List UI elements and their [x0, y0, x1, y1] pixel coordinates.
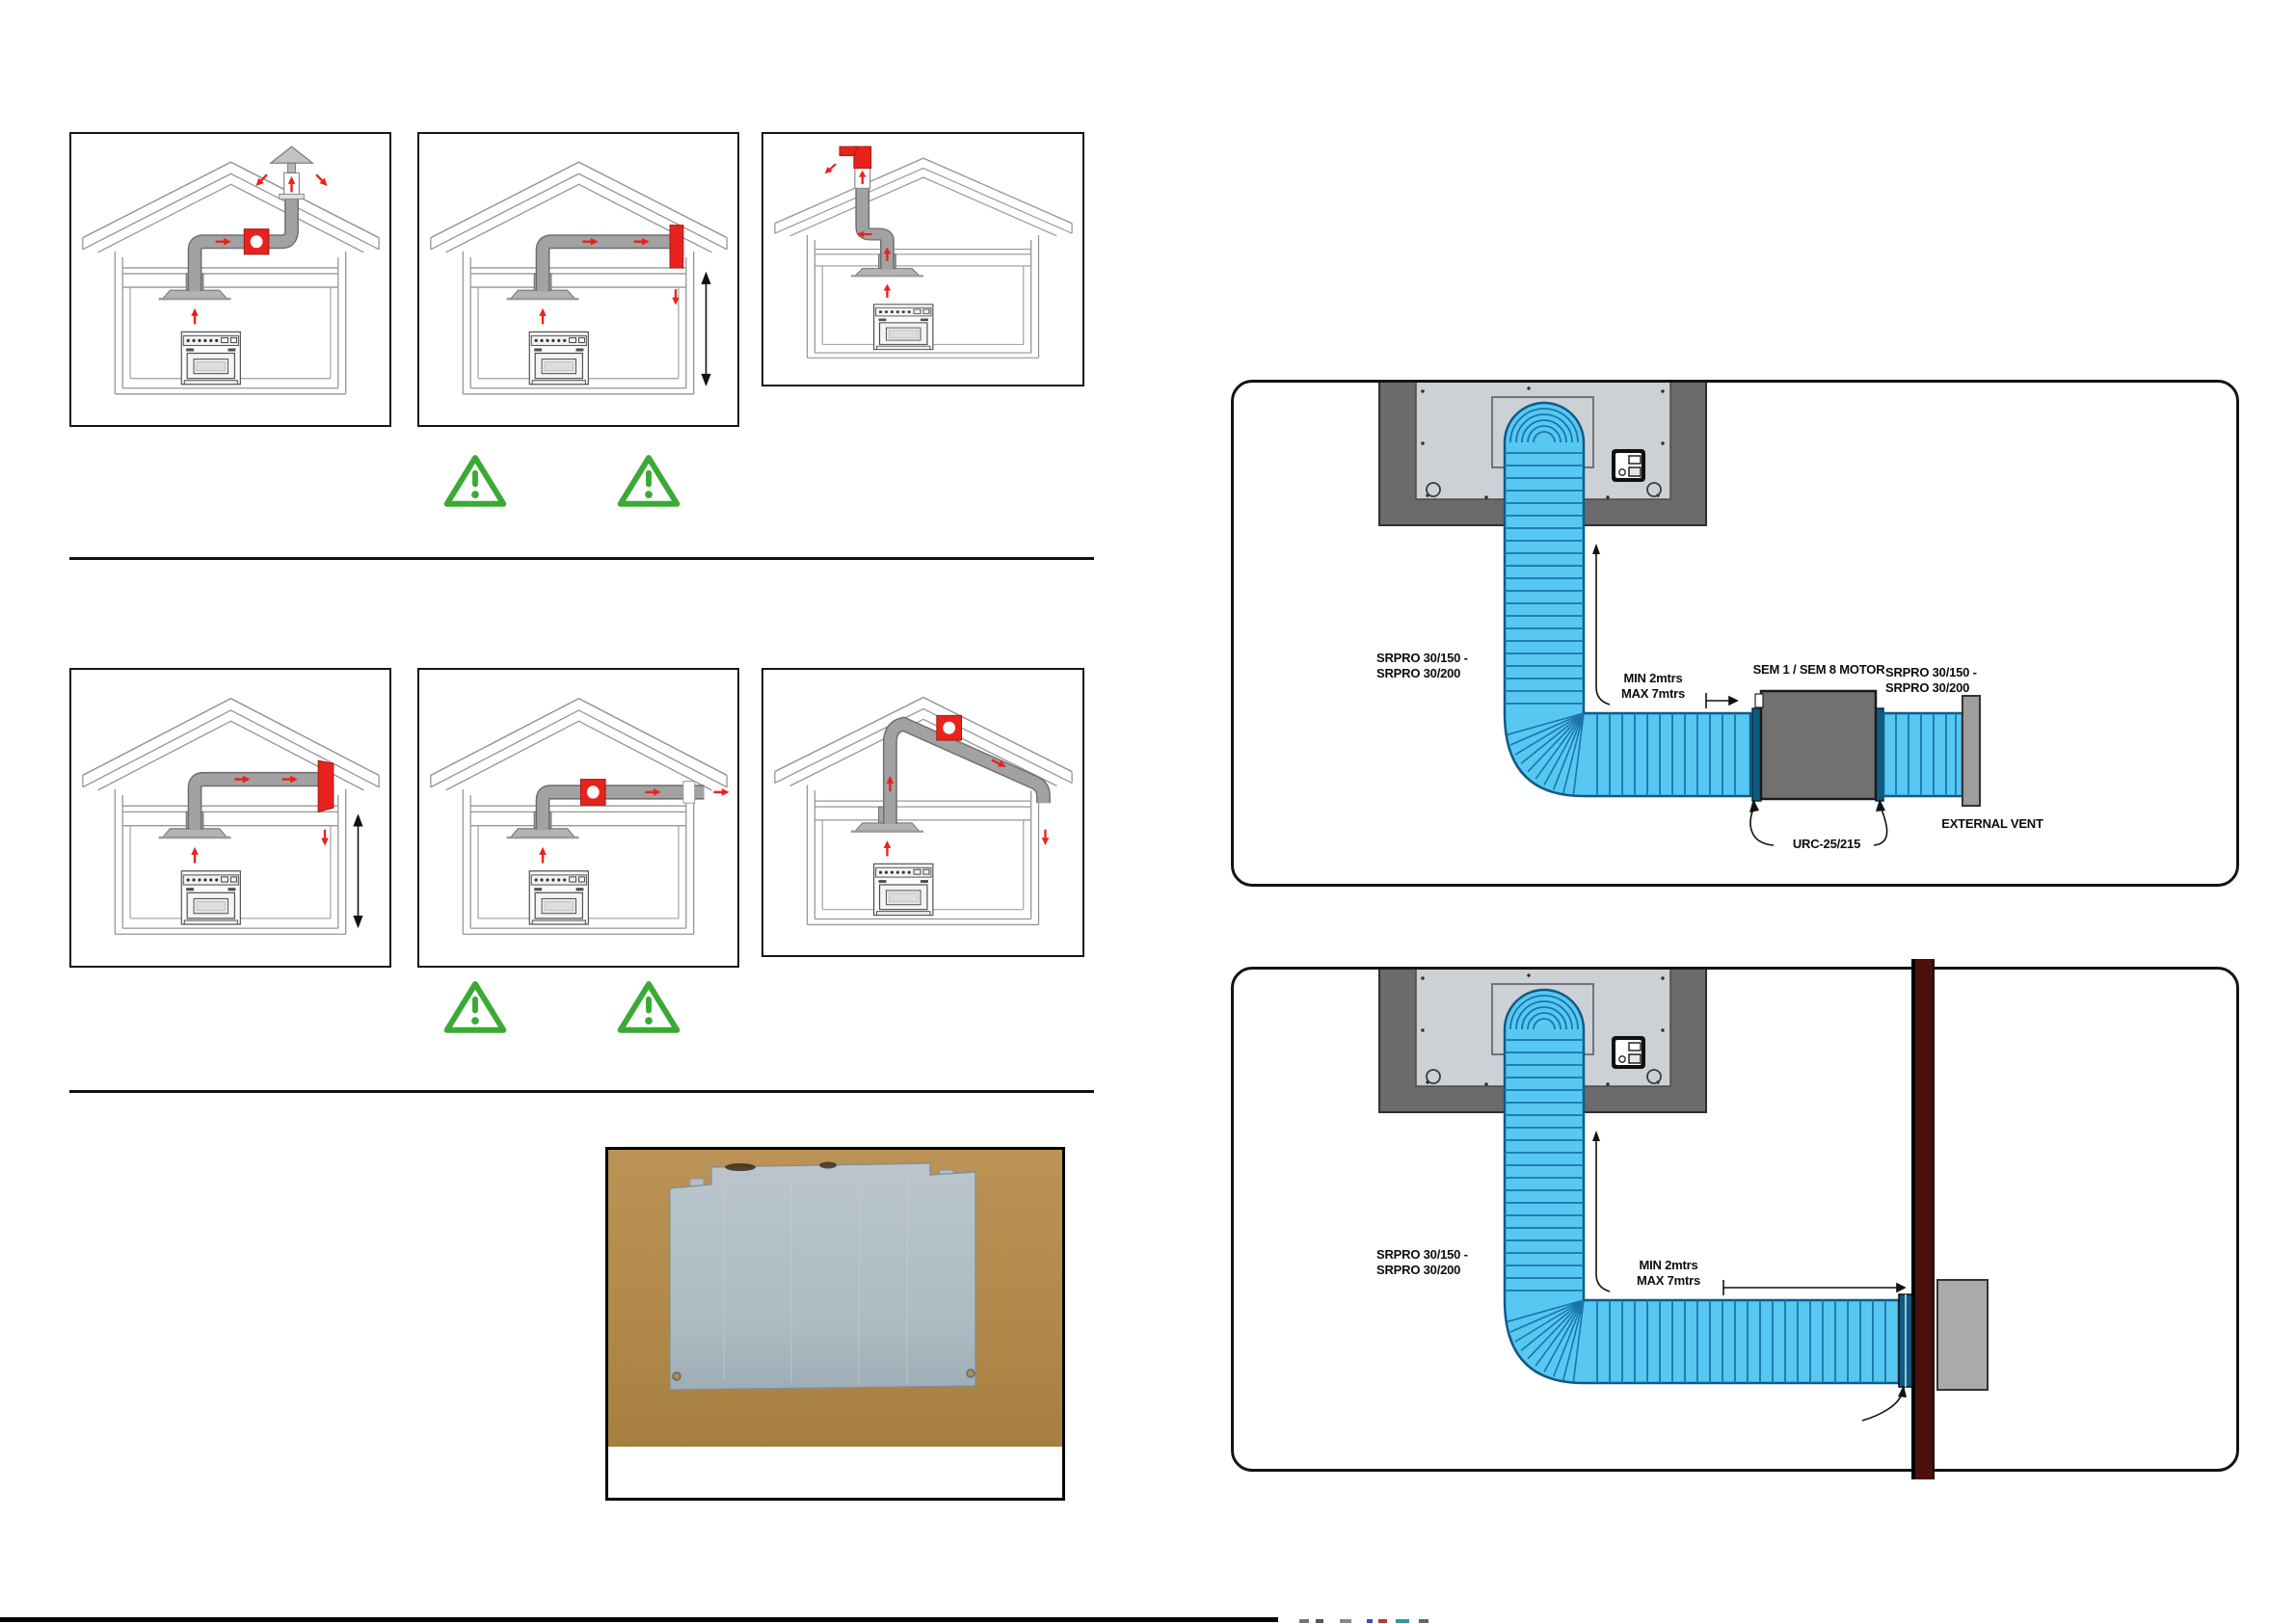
panel-inline-fan-through-wall	[417, 668, 739, 968]
sem-motor-box	[1761, 691, 1876, 799]
section-divider	[69, 1090, 1094, 1093]
inline-motor-system-diagram: SRPRO 30/150 - SRPRO 30/200 MIN 2mtrs MA…	[1231, 380, 2239, 887]
airflow-arrow	[1042, 830, 1050, 845]
airflow-arrow	[713, 788, 729, 796]
duct	[195, 196, 291, 291]
wall-vent-system-diagram: SRPRO 30/150 - SRPRO 30/200 MIN 2mtrs MA…	[1231, 967, 2239, 1472]
burn-mark	[819, 1162, 837, 1169]
warning-triangle-icon	[443, 451, 507, 509]
inline-fan-icon	[580, 780, 605, 806]
panel-roof-slope-fan	[761, 668, 1084, 957]
cutoff-text-fragments	[1378, 1619, 1387, 1623]
inline-motor-art	[1234, 383, 2236, 884]
wall-exit-callout-arrow	[1862, 1385, 1907, 1421]
cutoff-text-fragments	[1419, 1619, 1428, 1623]
cutoff-text-fragments	[1340, 1619, 1351, 1623]
inline-fan-icon	[937, 715, 962, 740]
panel-roof-slope-outlet	[761, 132, 1084, 386]
page-bottom-rule	[0, 1617, 1278, 1622]
airflow-arrow	[314, 173, 331, 189]
instruction-manual-page: SRPRO 30/150 - SRPRO 30/200 MIN 2mtrs MA…	[0, 0, 2296, 1624]
duct-up-arrow	[1592, 1131, 1610, 1291]
airflow-arrow	[822, 162, 839, 176]
screw-hole	[967, 1370, 974, 1377]
min-max-arrow	[1723, 1280, 1905, 1295]
roof-cowl-icon	[840, 146, 871, 169]
flexible-duct-right	[1883, 713, 1962, 796]
roof-slope-diagram	[763, 134, 1082, 385]
cutoff-text-fragments	[1367, 1619, 1373, 1623]
panel-wall-vent-high	[417, 132, 739, 427]
closure-plate	[670, 1163, 975, 1390]
height-measurement-arrow	[355, 815, 362, 926]
roof-slope-fan-diagram	[763, 670, 1082, 955]
inline-fan-diagram	[419, 670, 737, 966]
airflow-arrow	[321, 830, 328, 846]
cutoff-text-fragments	[1299, 1619, 1309, 1623]
inline-fan-icon	[244, 229, 269, 254]
srpro-right-label: SRPRO 30/150 - SRPRO 30/200	[1885, 665, 1977, 696]
motor-label: SEM 1 / SEM 8 MOTOR	[1732, 662, 1906, 678]
closure-plate-photo	[605, 1147, 1065, 1501]
motor-inlet-tab	[1755, 694, 1763, 707]
roof-cowl-icon	[271, 146, 312, 173]
wall-penetration	[683, 782, 695, 804]
urc-label: URC-25/215	[1770, 837, 1883, 852]
wall-vent-diagram-2	[71, 670, 389, 966]
duct	[543, 792, 704, 830]
urc-connector-left	[1752, 708, 1761, 801]
srpro-left-label: SRPRO 30/150 - SRPRO 30/200	[1376, 651, 1468, 681]
burn-mark	[725, 1163, 756, 1171]
wall-vent-icon	[670, 226, 683, 268]
external-vent-box	[1937, 1280, 1988, 1390]
min-max-label: MIN 2mtrs MAX 7mtrs	[1603, 671, 1703, 702]
srpro-left-label: SRPRO 30/150 - SRPRO 30/200	[1376, 1247, 1468, 1278]
external-vent-bar	[1962, 696, 1980, 806]
height-measurement-arrow	[703, 274, 710, 385]
duct	[543, 242, 670, 291]
panel-wall-vent-measure	[69, 668, 391, 968]
external-wall	[1911, 959, 1935, 1479]
min-max-label: MIN 2mtrs MAX 7mtrs	[1617, 1258, 1720, 1289]
closure-plate-photo-image	[608, 1150, 1062, 1498]
duct	[890, 724, 1043, 824]
wall-vent-diagram	[419, 134, 737, 425]
warning-triangle-icon	[617, 977, 681, 1035]
warning-triangle-icon	[443, 977, 507, 1035]
roof-flange	[280, 194, 305, 199]
wall-vent-icon	[318, 760, 334, 812]
roof-cowl-diagram	[71, 134, 389, 425]
duct	[195, 780, 318, 830]
warning-triangle-icon	[617, 451, 681, 509]
external-vent-label: EXTERNAL VENT	[1920, 816, 2065, 832]
wall-vent-art	[1234, 970, 2236, 1469]
section-divider	[69, 557, 1094, 560]
min-max-arrow	[1706, 693, 1737, 708]
cutoff-text-fragments	[1396, 1619, 1409, 1623]
duct	[863, 187, 888, 269]
screw-hole	[673, 1372, 681, 1380]
cutoff-text-fragments	[1316, 1619, 1323, 1623]
panel-roof-cowl-outlet	[69, 132, 391, 427]
